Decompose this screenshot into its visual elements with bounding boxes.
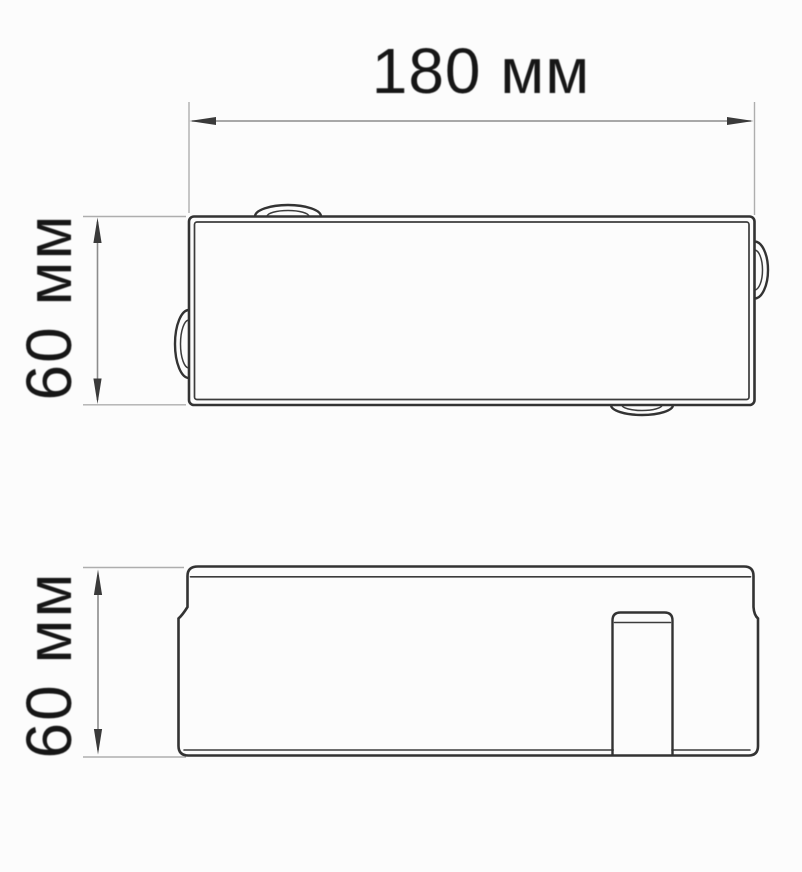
arrow-right-icon bbox=[727, 117, 754, 125]
width-dimension-label: 180 мм bbox=[351, 34, 611, 108]
side-view bbox=[179, 567, 759, 756]
cable-tab-fill bbox=[614, 614, 672, 754]
arrow-left-icon bbox=[190, 117, 217, 125]
arrow-up-icon bbox=[93, 218, 101, 244]
top-view bbox=[175, 205, 768, 415]
technical-drawing-canvas: 180 мм 60 мм 60 мм bbox=[0, 0, 802, 872]
drawing-svg bbox=[0, 0, 802, 872]
top-view-height-dimension bbox=[83, 217, 186, 405]
width-dimension bbox=[189, 102, 755, 215]
top-view-outer-wall bbox=[189, 217, 755, 406]
top-view-height-label: 60 мм bbox=[14, 197, 84, 417]
arrow-up-icon bbox=[94, 570, 102, 596]
side-view-height-dimension bbox=[83, 568, 186, 758]
arrow-down-icon bbox=[94, 729, 102, 755]
arrow-down-icon bbox=[93, 379, 101, 405]
side-view-height-label: 60 мм bbox=[14, 555, 84, 775]
